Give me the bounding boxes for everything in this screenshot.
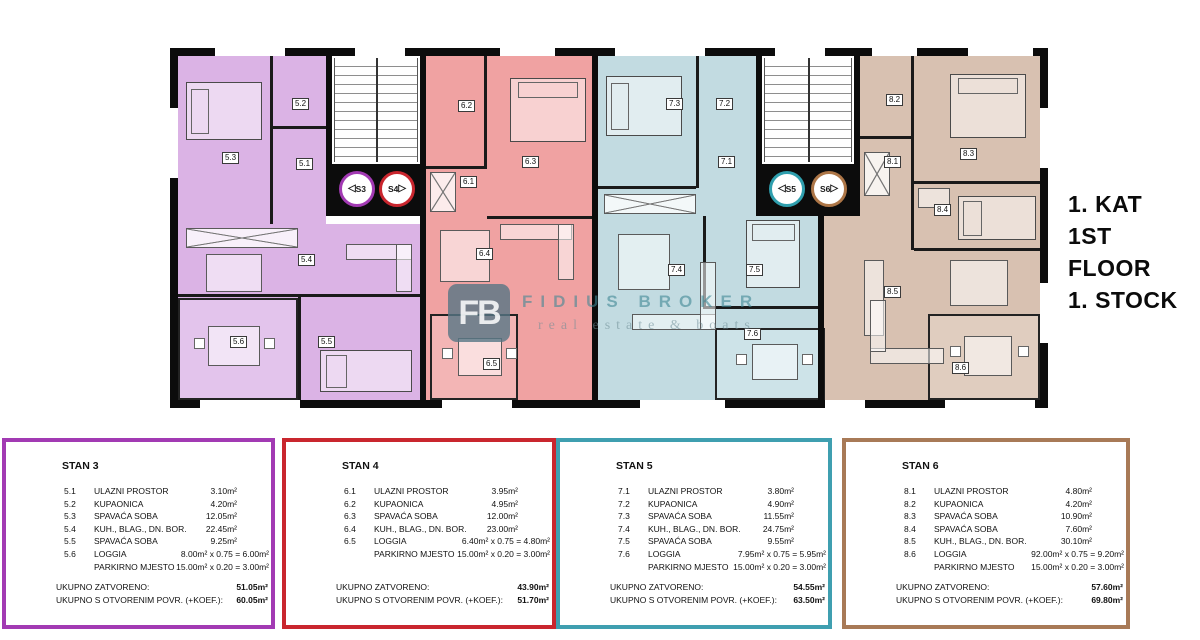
room-name: ULAZNI PROSTOR	[648, 486, 722, 496]
total-label: UKUPNO ZATVORENO:	[610, 582, 703, 592]
wall-segment	[170, 400, 1048, 408]
room-number-label: 5.5	[318, 336, 335, 348]
table-icon	[458, 338, 502, 376]
room-name: KUH., BLAG., DN. BOR.	[94, 524, 187, 534]
totals-block: UKUPNO ZATVORENO:54.55m²UKUPNO S OTVOREN…	[560, 582, 828, 608]
room-area-value: 4.20m²	[1066, 499, 1092, 509]
room-area-value: 7.95m² x 0.75 = 5.95m²	[738, 549, 826, 559]
room-area-value: 4.95m²	[492, 499, 518, 509]
room-number-label: 6.4	[476, 248, 493, 260]
room-code: 7.3	[618, 511, 630, 521]
room-list: 8.1ULAZNI PROSTOR4.80m²8.2KUPAONICA4.20m…	[846, 486, 1126, 574]
wall-segment	[914, 248, 1040, 251]
sofa-icon	[558, 224, 574, 280]
totals-block: UKUPNO ZATVORENO:51.05m²UKUPNO S OTVOREN…	[6, 582, 271, 608]
stairwell-east	[764, 58, 852, 162]
window	[640, 400, 725, 408]
apartment-card-title: STAN 5	[616, 460, 653, 472]
room-row: 5.6LOGGIA8.00m² x 0.75 = 6.00m²	[6, 549, 271, 562]
room-number-label: 7.1	[718, 156, 735, 168]
room-area-value: 6.40m² x 0.75 = 4.80m²	[462, 536, 550, 546]
apartment-card-title: STAN 4	[342, 460, 379, 472]
chair-icon	[950, 346, 961, 357]
bed-icon	[746, 220, 800, 288]
room-area-value: 22.45m²	[206, 524, 237, 534]
right-triangle-icon: ▷	[398, 184, 406, 194]
room-code: 8.4	[904, 524, 916, 534]
bed-icon	[958, 196, 1036, 240]
stair-badge-s4: S4▷	[379, 171, 415, 207]
room-code: 7.6	[618, 549, 630, 559]
stair-badge-label: S6	[820, 184, 830, 194]
chair-icon	[442, 348, 453, 359]
apartment-card-stan5: STAN 57.1ULAZNI PROSTOR3.80m²7.2KUPAONIC…	[556, 438, 832, 629]
room-area-value: 4.90m²	[768, 499, 794, 509]
room-area-value: 3.10m²	[211, 486, 237, 496]
room-code: 7.2	[618, 499, 630, 509]
left-triangle-icon: ◁	[348, 184, 356, 194]
window	[200, 400, 300, 408]
right-triangle-icon: ▷	[830, 184, 838, 194]
wardrobe-icon	[186, 228, 298, 248]
apartment-card-stan6: STAN 68.1ULAZNI PROSTOR4.80m²8.2KUPAONIC…	[842, 438, 1130, 629]
room-area-value: 3.95m²	[492, 486, 518, 496]
floor-title-line: 1. KAT	[1068, 188, 1200, 220]
room-code: 7.5	[618, 536, 630, 546]
room-number-label: 8.6	[952, 362, 969, 374]
table-icon	[964, 336, 1012, 376]
room-code: 8.1	[904, 486, 916, 496]
wall-segment	[170, 48, 178, 408]
room-code: 5.2	[64, 499, 76, 509]
total-row: UKUPNO S OTVORENIM POVR. (+KOEF.):51.70m…	[286, 595, 552, 608]
room-code: 5.4	[64, 524, 76, 534]
window	[775, 48, 825, 56]
room-name: LOGGIA	[648, 549, 681, 559]
total-label: UKUPNO S OTVORENIM POVR. (+KOEF.):	[56, 595, 223, 605]
room-name: KUPAONICA	[94, 499, 143, 509]
room-row: 7.5SPAVAĆA SOBA9.55m²	[560, 536, 828, 549]
room-name: KUH., BLAG., DN. BOR.	[374, 524, 467, 534]
room-number-label: 5.2	[292, 98, 309, 110]
room-area-value: 15.00m² x 0.20 = 3.00m²	[457, 549, 550, 559]
stair-badge-label: S5	[786, 184, 796, 194]
room-code: 7.1	[618, 486, 630, 496]
room-name: SPAVAĆA SOBA	[934, 511, 998, 521]
room-name: KUH., BLAG., DN. BOR.	[648, 524, 741, 534]
wall-segment	[487, 216, 592, 219]
room-number-label: 7.3	[666, 98, 683, 110]
room-code: 8.2	[904, 499, 916, 509]
room-area-value: 15.00m² x 0.20 = 3.00m²	[176, 562, 269, 572]
total-value: 69.80m²	[1091, 595, 1123, 605]
total-label: UKUPNO S OTVORENIM POVR. (+KOEF.):	[336, 595, 503, 605]
window	[215, 48, 285, 56]
room-name: PARKIRNO MJESTO	[94, 562, 174, 572]
total-label: UKUPNO ZATVORENO:	[336, 582, 429, 592]
room-number-label: 8.1	[884, 156, 901, 168]
room-name: ULAZNI PROSTOR	[374, 486, 448, 496]
room-row: 6.4KUH., BLAG., DN. BOR.23.00m²	[286, 524, 552, 537]
room-number-label: 6.3	[522, 156, 539, 168]
total-row: UKUPNO ZATVORENO:51.05m²	[6, 582, 271, 595]
room-area-value: 23.00m²	[487, 524, 518, 534]
room-row: 7.2KUPAONICA4.90m²	[560, 499, 828, 512]
room-code: 6.4	[344, 524, 356, 534]
room-name: SPAVAĆA SOBA	[648, 536, 712, 546]
room-number-label: 6.2	[458, 100, 475, 112]
window	[872, 48, 917, 56]
room-number-label: 7.2	[716, 98, 733, 110]
room-list: 6.1ULAZNI PROSTOR3.95m²6.2KUPAONICA4.95m…	[286, 486, 552, 562]
room-name: ULAZNI PROSTOR	[94, 486, 168, 496]
left-triangle-icon: ◁	[778, 184, 786, 194]
floor-plan: 5.35.25.15.45.55.66.26.16.36.46.57.37.27…	[170, 48, 1048, 415]
room-area-value: 92.00m² x 0.75 = 9.20m²	[1031, 549, 1124, 559]
room-number-label: 8.4	[934, 204, 951, 216]
window	[1040, 283, 1048, 343]
room-code: 7.4	[618, 524, 630, 534]
room-name: SPAVAĆA SOBA	[374, 511, 438, 521]
totals-block: UKUPNO ZATVORENO:43.90m²UKUPNO S OTVOREN…	[286, 582, 552, 608]
wall-segment	[911, 136, 914, 250]
total-label: UKUPNO ZATVORENO:	[896, 582, 989, 592]
wall-segment	[1040, 48, 1048, 408]
total-value: 54.55m²	[793, 582, 825, 592]
room-name: LOGGIA	[94, 549, 127, 559]
room-area-value: 12.05m²	[206, 511, 237, 521]
room-area-value: 10.90m²	[1061, 511, 1092, 521]
window	[615, 48, 705, 56]
floor-title: 1. KAT 1ST FLOOR 1. STOCK	[1068, 188, 1200, 316]
watermark: FIDIUS BROKER real estate & boats	[522, 292, 760, 334]
sofa-icon	[396, 244, 412, 292]
chair-icon	[802, 354, 813, 365]
watermark-tagline: real estate & boats	[538, 318, 760, 334]
room-area-value: 12.00m²	[487, 511, 518, 521]
room-code: 6.1	[344, 486, 356, 496]
dining-table-icon	[618, 234, 670, 290]
floor-title-line: 1. STOCK	[1068, 284, 1200, 316]
wall-segment	[326, 208, 426, 216]
room-row: PARKIRNO MJESTO15.00m² x 0.20 = 3.00m²	[560, 562, 828, 575]
room-number-label: 6.1	[460, 176, 477, 188]
wardrobe-icon	[604, 194, 696, 214]
room-number-label: 8.5	[884, 286, 901, 298]
room-name: PARKIRNO MJESTO	[934, 562, 1014, 572]
room-list: 5.1ULAZNI PROSTOR3.10m²5.2KUPAONICA4.20m…	[6, 486, 271, 574]
stairwell-west	[334, 58, 418, 162]
total-row: UKUPNO S OTVORENIM POVR. (+KOEF.):69.80m…	[846, 595, 1126, 608]
room-number-label: 6.5	[483, 358, 500, 370]
total-value: 57.60m²	[1091, 582, 1123, 592]
room-area-value: 3.80m²	[768, 486, 794, 496]
room-code: 5.6	[64, 549, 76, 559]
room-number-label: 5.3	[222, 152, 239, 164]
bed-icon	[950, 74, 1026, 138]
wall-segment	[270, 126, 326, 129]
room-number-label: 5.4	[298, 254, 315, 266]
dining-table-icon	[950, 260, 1008, 306]
room-row: 8.5KUH., BLAG., DN. BOR.30.10m²	[846, 536, 1126, 549]
room-name: SPAVAĆA SOBA	[94, 511, 158, 521]
room-row: 6.2KUPAONICA4.95m²	[286, 499, 552, 512]
room-row: 8.1ULAZNI PROSTOR4.80m²	[846, 486, 1126, 499]
room-row: 5.4KUH., BLAG., DN. BOR.22.45m²	[6, 524, 271, 537]
room-area-value: 11.55m²	[763, 511, 794, 521]
room-row: PARKIRNO MJESTO15.00m² x 0.20 = 3.00m²	[846, 562, 1126, 575]
wall-segment	[854, 48, 860, 216]
room-row: 6.3SPAVAĆA SOBA12.00m²	[286, 511, 552, 524]
room-area-value: 9.55m²	[768, 536, 794, 546]
room-name: PARKIRNO MJESTO	[648, 562, 728, 572]
room-number-label: 5.6	[230, 336, 247, 348]
dining-table-icon	[206, 254, 262, 292]
apartment-card-title: STAN 3	[62, 460, 99, 472]
window	[825, 400, 865, 408]
room-row: 8.3SPAVAĆA SOBA10.90m²	[846, 511, 1126, 524]
room-row: 7.6LOGGIA7.95m² x 0.75 = 5.95m²	[560, 549, 828, 562]
room-name: PARKIRNO MJESTO	[374, 549, 454, 559]
room-row: 6.1ULAZNI PROSTOR3.95m²	[286, 486, 552, 499]
room-area-value: 30.10m²	[1061, 536, 1092, 546]
watermark-brand: FIDIUS BROKER	[522, 292, 760, 312]
stair-badge-s3: ◁S3	[339, 171, 375, 207]
total-value: 51.05m²	[236, 582, 268, 592]
window	[442, 400, 512, 408]
wall-segment	[598, 186, 696, 189]
room-area-value: 24.75m²	[763, 524, 794, 534]
total-row: UKUPNO S OTVORENIM POVR. (+KOEF.):60.05m…	[6, 595, 271, 608]
room-row: 5.3SPAVAĆA SOBA12.05m²	[6, 511, 271, 524]
room-row: 6.5LOGGIA6.40m² x 0.75 = 4.80m²	[286, 536, 552, 549]
total-value: 60.05m²	[236, 595, 268, 605]
room-code: 5.5	[64, 536, 76, 546]
apartment-card-stan3: STAN 35.1ULAZNI PROSTOR3.10m²5.2KUPAONIC…	[2, 438, 275, 629]
chair-icon	[264, 338, 275, 349]
wall-segment	[592, 48, 598, 400]
window	[968, 48, 1033, 56]
wall-segment	[818, 216, 824, 400]
stair-badge-s5: ◁S5	[769, 171, 805, 207]
room-area-value: 4.20m²	[211, 499, 237, 509]
wall-segment	[756, 208, 860, 216]
room-area-value: 15.00m² x 0.20 = 3.00m²	[1031, 562, 1124, 572]
wall-segment	[911, 56, 914, 138]
total-label: UKUPNO S OTVORENIM POVR. (+KOEF.):	[610, 595, 777, 605]
room-row: PARKIRNO MJESTO15.00m² x 0.20 = 3.00m²	[6, 562, 271, 575]
room-row: PARKIRNO MJESTO15.00m² x 0.20 = 3.00m²	[286, 549, 552, 562]
chair-icon	[1018, 346, 1029, 357]
wall-segment	[696, 56, 699, 188]
room-row: 5.2KUPAONICA4.20m²	[6, 499, 271, 512]
chair-icon	[194, 338, 205, 349]
room-name: ULAZNI PROSTOR	[934, 486, 1008, 496]
room-area-value: 9.25m²	[211, 536, 237, 546]
fidius-broker-logo: FB	[448, 284, 510, 342]
window	[945, 400, 1035, 408]
bed-icon	[320, 350, 412, 392]
room-code: 5.3	[64, 511, 76, 521]
chair-icon	[736, 354, 747, 365]
room-name: SPAVAĆA SOBA	[648, 511, 712, 521]
window	[500, 48, 555, 56]
total-value: 51.70m²	[517, 595, 549, 605]
bed-icon	[186, 82, 262, 140]
totals-block: UKUPNO ZATVORENO:57.60m²UKUPNO S OTVOREN…	[846, 582, 1126, 608]
room-row: 7.1ULAZNI PROSTOR3.80m²	[560, 486, 828, 499]
wall-segment	[420, 48, 426, 400]
total-label: UKUPNO S OTVORENIM POVR. (+KOEF.):	[896, 595, 1063, 605]
total-value: 43.90m²	[517, 582, 549, 592]
room-number-label: 7.4	[668, 264, 685, 276]
room-list: 7.1ULAZNI PROSTOR3.80m²7.2KUPAONICA4.90m…	[560, 486, 828, 574]
room-number-label: 5.1	[296, 158, 313, 170]
wall-segment	[484, 56, 487, 168]
total-row: UKUPNO ZATVORENO:57.60m²	[846, 582, 1126, 595]
floor-plan-page: 5.35.25.15.45.55.66.26.16.36.46.57.37.27…	[0, 0, 1200, 640]
table-icon	[752, 344, 798, 380]
room-number-label: 7.5	[746, 264, 763, 276]
room-name: LOGGIA	[374, 536, 407, 546]
room-name: KUPAONICA	[648, 499, 697, 509]
room-name: SPAVAĆA SOBA	[94, 536, 158, 546]
room-row: 7.4KUH., BLAG., DN. BOR.24.75m²	[560, 524, 828, 537]
room-row: 5.1ULAZNI PROSTOR3.10m²	[6, 486, 271, 499]
wall-segment	[298, 294, 301, 400]
room-name: KUPAONICA	[374, 499, 423, 509]
room-name: KUH., BLAG., DN. BOR.	[934, 536, 1027, 546]
room-code: 8.3	[904, 511, 916, 521]
total-value: 63.50m²	[793, 595, 825, 605]
room-row: 8.4SPAVAĆA SOBA7.60m²	[846, 524, 1126, 537]
room-row: 8.6LOGGIA92.00m² x 0.75 = 9.20m²	[846, 549, 1126, 562]
room-name: KUPAONICA	[934, 499, 983, 509]
room-code: 8.5	[904, 536, 916, 546]
chair-icon	[506, 348, 517, 359]
wall-segment	[426, 166, 487, 169]
room-code: 6.5	[344, 536, 356, 546]
apartment-area-stan6-ext	[824, 216, 860, 400]
wall-segment	[860, 136, 914, 139]
room-row: 8.2KUPAONICA4.20m²	[846, 499, 1126, 512]
room-area-value: 7.60m²	[1066, 524, 1092, 534]
total-row: UKUPNO ZATVORENO:54.55m²	[560, 582, 828, 595]
room-name: SPAVAĆA SOBA	[934, 524, 998, 534]
stair-badge-label: S3	[356, 184, 366, 194]
total-row: UKUPNO S OTVORENIM POVR. (+KOEF.):63.50m…	[560, 595, 828, 608]
sofa-icon	[870, 300, 886, 352]
wall-segment	[270, 56, 273, 224]
room-code: 6.2	[344, 499, 356, 509]
wall-segment	[914, 181, 1040, 184]
total-row: UKUPNO ZATVORENO:43.90m²	[286, 582, 552, 595]
room-row: 7.3SPAVAĆA SOBA11.55m²	[560, 511, 828, 524]
room-number-label: 8.3	[960, 148, 977, 160]
total-label: UKUPNO ZATVORENO:	[56, 582, 149, 592]
room-number-label: 8.2	[886, 94, 903, 106]
room-area-value: 8.00m² x 0.75 = 6.00m²	[181, 549, 269, 559]
room-code: 8.6	[904, 549, 916, 559]
room-area-value: 4.80m²	[1066, 486, 1092, 496]
room-row: 5.5SPAVAĆA SOBA9.25m²	[6, 536, 271, 549]
stair-badge-label: S4	[388, 184, 398, 194]
room-code: 5.1	[64, 486, 76, 496]
bed-icon	[510, 78, 586, 142]
apartment-card-title: STAN 6	[902, 460, 939, 472]
window	[1040, 108, 1048, 168]
room-area-value: 15.00m² x 0.20 = 3.00m²	[733, 562, 826, 572]
room-name: LOGGIA	[934, 549, 967, 559]
wardrobe-icon	[430, 172, 456, 212]
floor-title-line: 1ST FLOOR	[1068, 220, 1200, 284]
stair-badge-s6: S6▷	[811, 171, 847, 207]
apartment-card-stan4: STAN 46.1ULAZNI PROSTOR3.95m²6.2KUPAONIC…	[282, 438, 556, 629]
window	[170, 108, 178, 178]
room-code: 6.3	[344, 511, 356, 521]
window	[355, 48, 405, 56]
